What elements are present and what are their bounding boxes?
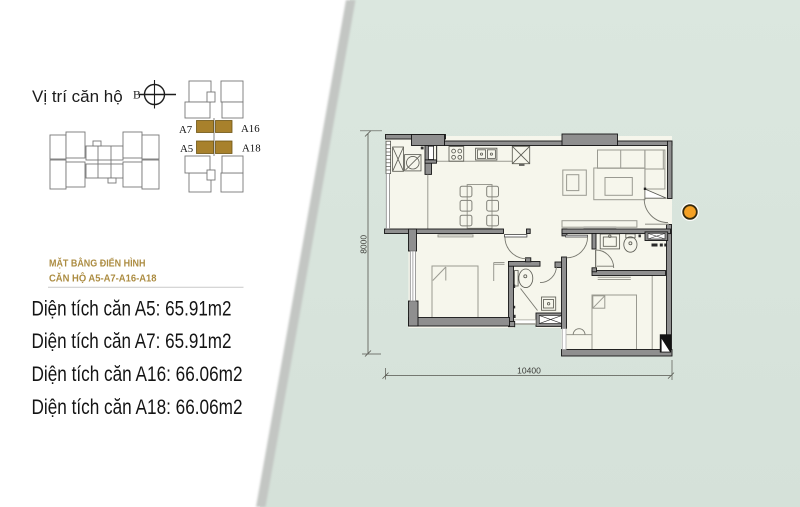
svg-text:A7: A7 (179, 124, 193, 136)
svg-text:CĂN HỘ A5-A7-A16-A18: CĂN HỘ A5-A7-A16-A18 (49, 272, 157, 285)
svg-text:MẶT BẰNG ĐIỂN HÌNH: MẶT BẰNG ĐIỂN HÌNH (49, 257, 146, 270)
svg-text:A18: A18 (242, 143, 261, 155)
svg-text:A5: A5 (180, 143, 193, 155)
svg-text:Diện tích căn A18: 66.06m2: Diện tích căn A18: 66.06m2 (32, 396, 243, 419)
svg-text:Vị trí căn hộ: Vị trí căn hộ (32, 87, 123, 106)
svg-text:Diện tích căn A7: 65.91m2: Diện tích căn A7: 65.91m2 (32, 330, 232, 353)
svg-text:8000: 8000 (359, 235, 369, 254)
svg-text:B: B (133, 90, 141, 102)
svg-text:Diện tích căn A5: 65.91m2: Diện tích căn A5: 65.91m2 (32, 298, 232, 321)
svg-text:10400: 10400 (517, 366, 541, 376)
svg-text:A16: A16 (241, 123, 260, 135)
svg-text:Diện tích căn A16: 66.06m2: Diện tích căn A16: 66.06m2 (32, 363, 243, 386)
